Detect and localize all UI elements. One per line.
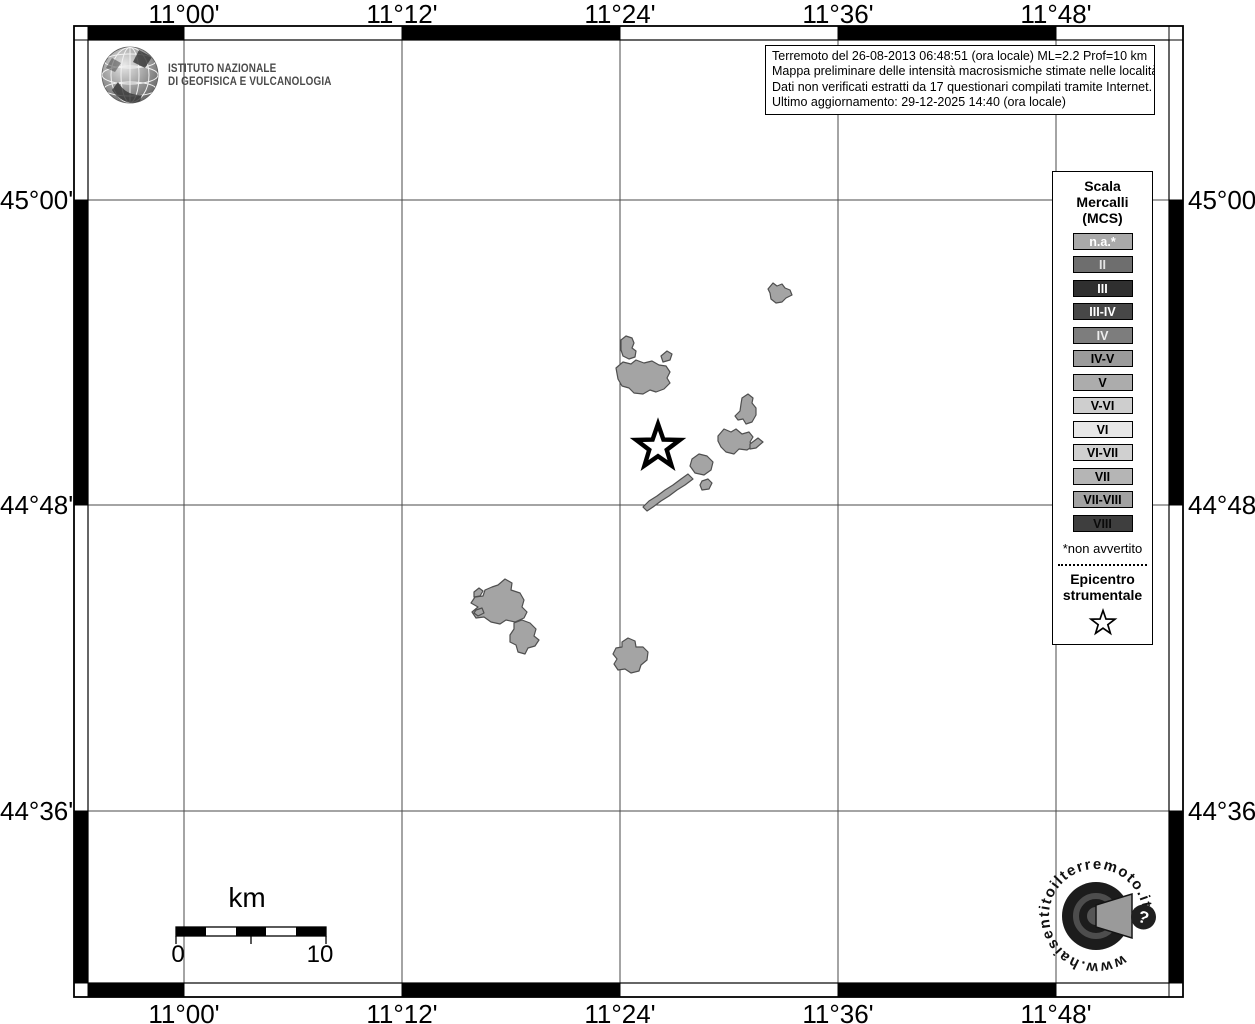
earthquake-info-box: Terremoto del 26-08-2013 06:48:51 (ora l… [765,45,1155,115]
axis-label-top-1: 11°12' [337,0,467,28]
axis-label-left-0: 45°00' [0,185,68,215]
legend-item-na: n.a.* [1073,233,1133,250]
info-line-map-type: Mappa preliminare delle intensità macros… [772,64,1148,79]
axis-label-right-0: 45°00' [1188,185,1255,215]
legend-item-iii: III [1073,280,1133,297]
legend-item-vi: VI [1073,421,1133,438]
scale-bar-unit-label: km [212,882,282,914]
mercalli-legend: Scala Mercalli (MCS) n.a.* II III III-IV… [1052,171,1153,645]
legend-epicenter-line1: Epicentro [1053,571,1152,587]
epicenter-legend-star-icon [1086,607,1120,637]
legend-item-iii-iv: III-IV [1073,303,1133,320]
axis-label-bottom-0: 11°00' [119,1000,249,1024]
legend-epicenter-symbol [1053,607,1152,642]
legend-footnote: *non avvertito [1053,541,1152,556]
legend-item-vii: VII [1073,468,1133,485]
ingv-logo-title: ISTITUTO NAZIONALE DI GEOFISICA E VULCAN… [168,63,332,89]
seismic-intensity-map-page: www.haisentitoilterremoto.it ? [0,0,1255,1024]
map-area [88,40,1169,983]
legend-item-iv: IV [1073,327,1133,344]
axis-label-top-2: 11°24' [555,0,685,28]
legend-epicenter-line2: strumentale [1053,587,1152,603]
legend-item-vi-vii: VI-VII [1073,444,1133,461]
legend-item-ii: II [1073,256,1133,273]
axis-label-right-1: 44°48' [1188,490,1255,520]
legend-title-line2: Mercalli [1053,194,1152,210]
legend-item-iv-v: IV-V [1073,350,1133,367]
axis-label-right-2: 44°36' [1188,796,1255,826]
axis-label-bottom-4: 11°48' [991,1000,1121,1024]
ingv-title-line1: ISTITUTO NAZIONALE [168,63,332,76]
axis-label-top-0: 11°00' [119,0,249,28]
axis-label-top-4: 11°48' [991,0,1121,28]
info-line-event: Terremoto del 26-08-2013 06:48:51 (ora l… [772,49,1148,64]
ingv-globe-icon [102,47,158,104]
legend-title-line1: Scala [1053,178,1152,194]
axis-label-top-3: 11°36' [773,0,903,28]
legend-title-line3: (MCS) [1053,210,1152,226]
axis-label-bottom-2: 11°24' [555,1000,685,1024]
scale-bar-min-label: 0 [158,941,198,969]
scale-bar-max-label: 10 [300,941,340,969]
legend-item-v: V [1073,374,1133,391]
ingv-title-line2: DI GEOFISICA E VULCANOLOGIA [168,76,332,89]
info-line-updated: Ultimo aggiornamento: 29-12-2025 14:40 (… [772,95,1148,110]
axis-label-left-1: 44°48' [0,490,68,520]
legend-item-vii-viii: VII-VIII [1073,491,1133,508]
info-line-questionnaires: Dati non verificati estratti da 17 quest… [772,80,1148,95]
axis-label-bottom-3: 11°36' [773,1000,903,1024]
legend-item-viii: VIII [1073,515,1133,532]
axis-label-left-2: 44°36' [0,796,68,826]
legend-divider [1058,564,1147,566]
axis-label-bottom-1: 11°12' [337,1000,467,1024]
legend-item-v-vi: V-VI [1073,397,1133,414]
